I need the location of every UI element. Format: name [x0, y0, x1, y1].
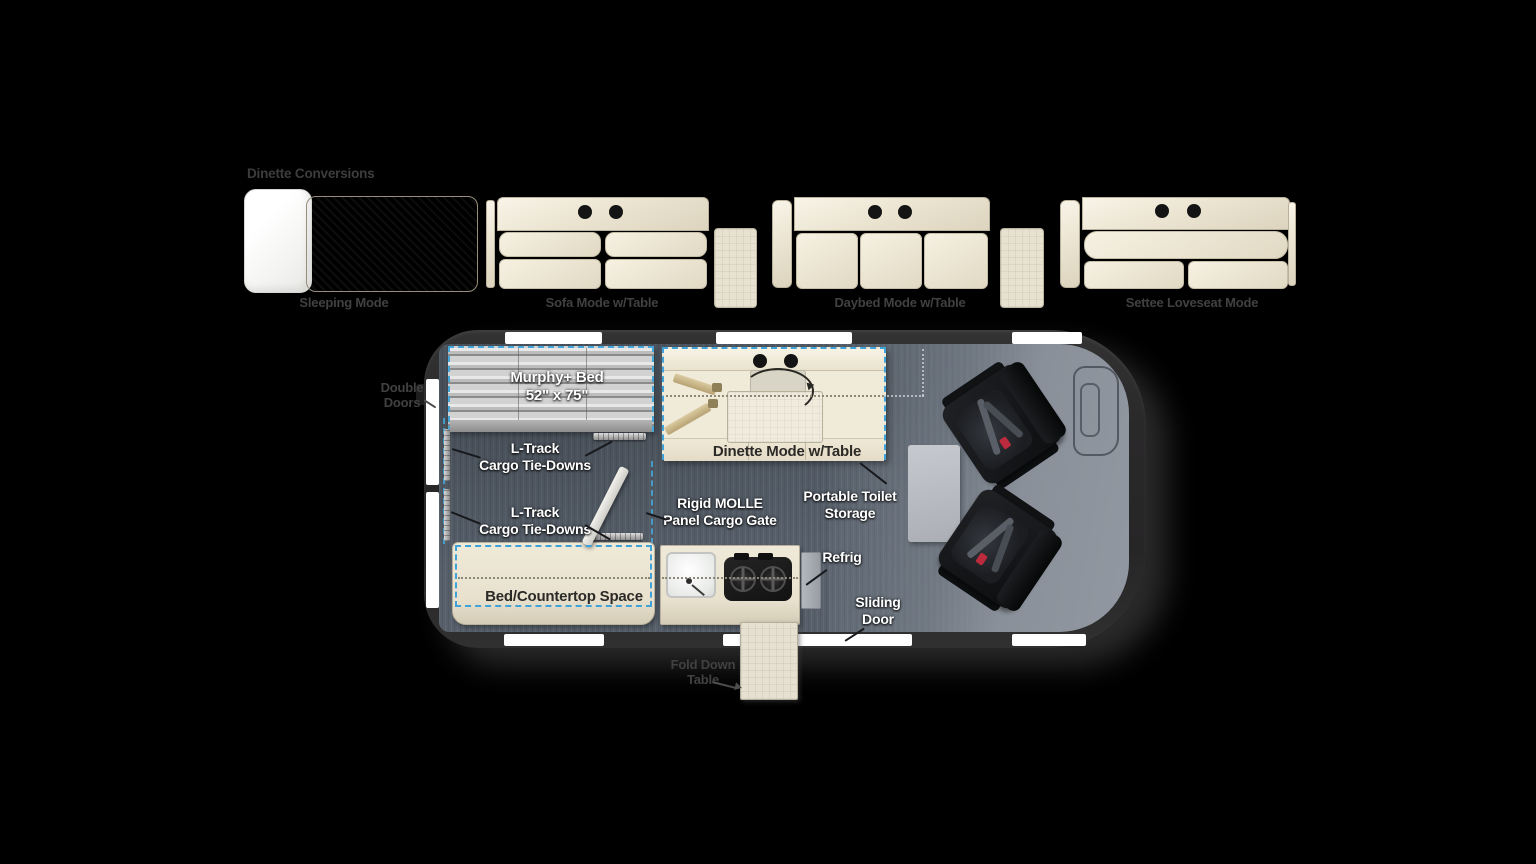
settee-backrest — [1082, 197, 1290, 230]
settee-bolster — [1084, 231, 1288, 259]
flex-space-dotted-line — [666, 395, 884, 397]
kitchen-sink — [666, 552, 716, 598]
settee-cushion — [1188, 261, 1288, 289]
table-mount-knob — [1187, 204, 1201, 218]
settee-mode-label: Settee Loveseat Mode — [1126, 295, 1259, 310]
cab-door-opening-top — [1012, 332, 1082, 344]
table-mount-knob — [868, 205, 882, 219]
sofa-cushion — [605, 259, 707, 289]
bed-mattress — [306, 196, 478, 292]
ltrack-upper-label: L-Track Cargo Tie-Downs — [479, 440, 591, 473]
daybed-backrest — [794, 197, 990, 231]
stove-burner — [760, 566, 786, 592]
sink-faucet — [691, 584, 705, 596]
daybed-cushion — [796, 233, 858, 289]
seatbelt-strap — [664, 403, 712, 436]
ltrack-wall-rail-lower — [444, 489, 450, 541]
dinette-mode-label: Dinette Mode w/Table — [713, 443, 861, 461]
sofa-cushion — [499, 259, 601, 289]
sofa-bolster — [605, 232, 707, 257]
cab-door-opening-bottom — [1012, 634, 1086, 646]
window-opening-top-2 — [716, 332, 852, 344]
fold-down-table-label: Fold Down Table — [671, 657, 736, 688]
ltrack-lower-label: L-Track Cargo Tie-Downs — [479, 504, 591, 537]
rear-door-opening-lower — [426, 492, 439, 608]
countertop-dotted-line — [458, 577, 650, 579]
cargo-gate-dashed-line — [651, 461, 653, 544]
seatbelt-buckle — [708, 399, 718, 408]
refrig-label: Refrig — [822, 549, 861, 566]
table-mount-knob — [578, 205, 592, 219]
kitchen-dotted-line — [662, 577, 798, 579]
table-mount-knob — [1155, 204, 1169, 218]
side-table — [714, 228, 757, 308]
flex-space-dotted-line — [884, 395, 924, 397]
murphy-bed-label: Murphy+ Bed 52" x 75" — [510, 369, 603, 404]
flex-space-dotted-line — [922, 349, 924, 396]
window-opening-bottom — [504, 634, 604, 646]
two-burner-stove — [724, 557, 792, 601]
table-mount-knob — [784, 354, 798, 368]
bed-pillow — [244, 189, 312, 293]
section-title: Dinette Conversions — [247, 166, 374, 181]
sofa-backrest — [497, 197, 709, 231]
sleeping-mode-label: Sleeping Mode — [299, 295, 388, 310]
table-mount-knob — [609, 205, 623, 219]
settee-armrest-left — [1060, 200, 1080, 288]
fold-down-table — [740, 622, 798, 700]
sliding-door-label: Sliding Door — [855, 594, 900, 627]
seatbelt-strap — [673, 373, 718, 395]
bed-countertop-label: Bed/Countertop Space — [485, 588, 643, 606]
front-seat-ghost-outline — [1073, 366, 1119, 456]
settee-cushion — [1084, 261, 1184, 289]
ltrack-floor-rail-upper — [593, 433, 646, 440]
side-table — [1000, 228, 1044, 308]
table-mount-knob — [753, 354, 767, 368]
settee-armrest-right — [1288, 202, 1296, 286]
double-doors-label: Double Doors — [381, 380, 424, 411]
daybed-armrest — [772, 200, 792, 288]
ltrack-wall-rail-upper — [444, 429, 450, 481]
window-opening-top-1 — [505, 332, 602, 344]
rear-door-opening-upper — [426, 379, 439, 485]
sofa-mode-label: Sofa Mode w/Table — [546, 295, 659, 310]
sofa-bolster — [499, 232, 601, 257]
daybed-cushion — [860, 233, 922, 289]
table-swing-arrow — [742, 368, 814, 414]
portable-toilet-label: Portable Toilet Storage — [803, 488, 896, 521]
sofa-armrest — [486, 200, 495, 288]
daybed-cushion — [924, 233, 988, 289]
molle-gate-label: Rigid MOLLE Panel Cargo Gate — [663, 495, 777, 528]
seatbelt-buckle — [712, 383, 722, 392]
rv-floorplan-diagram: Dinette Conversions Sleeping Mode Sofa M… — [0, 0, 1536, 864]
table-mount-knob — [898, 205, 912, 219]
stove-burner — [730, 566, 756, 592]
daybed-mode-label: Daybed Mode w/Table — [834, 295, 965, 310]
